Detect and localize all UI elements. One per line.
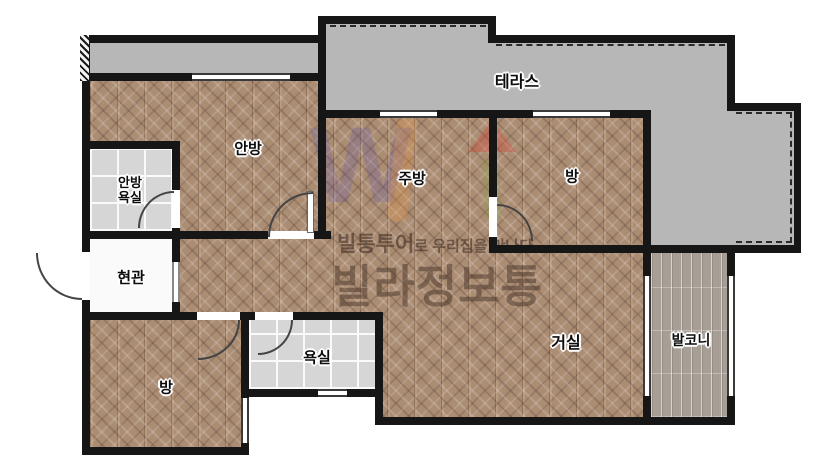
window-master-bedroom xyxy=(192,73,290,81)
room-label-master-bedroom: 안방 xyxy=(234,138,262,159)
wall-balcony-right-a xyxy=(727,245,735,276)
room-label-terrace: 테라스 xyxy=(495,68,539,92)
wall-kitchen-top-a xyxy=(318,110,380,118)
wall-bathroom-right xyxy=(375,312,383,425)
room-label-bathroom: 욕실 xyxy=(303,347,331,368)
terrace-right-bumpout xyxy=(727,111,794,245)
room-label-master-bathroom-line2: 욕실 xyxy=(118,190,142,205)
wall-terrace-bump-top xyxy=(318,16,496,24)
wall-living-balcony-b xyxy=(643,396,651,425)
wall-living-bottom xyxy=(375,417,734,425)
outside-cutout xyxy=(249,397,375,417)
terrace-ticks-bumpout-bottom xyxy=(736,241,792,243)
window-living-balcony xyxy=(643,276,651,396)
window-room-bl xyxy=(241,398,249,443)
wall-room-bl-bottom xyxy=(82,447,249,455)
window-balcony-outer xyxy=(727,276,735,396)
terrace-ticks-bumpout-top xyxy=(736,112,792,114)
door-gap-bathroom xyxy=(255,312,293,320)
wall-hall-right-a xyxy=(172,141,180,190)
window-kitchen xyxy=(380,110,437,118)
wall-master-top-a xyxy=(80,73,192,81)
wall-master-right xyxy=(318,16,326,239)
wall-hall-right-c xyxy=(172,302,180,320)
floor-plan: W 빌통투어로 우리집을 만나다 빌라정보통 xyxy=(0,0,840,472)
window-room-top-right xyxy=(533,110,610,118)
room-label-room-top-right: 방 xyxy=(565,166,579,187)
wall-master-bath-top xyxy=(82,141,179,149)
terrace-left-cap-hatch xyxy=(80,35,89,81)
room-label-entrance: 현관 xyxy=(117,267,145,288)
watermark-brand: 빌라정보통 xyxy=(331,250,543,315)
wall-hall-bottom-c xyxy=(293,312,383,320)
wall-top-right xyxy=(488,35,734,43)
door-gap-room-bl xyxy=(197,312,240,320)
wall-top-left xyxy=(80,35,326,43)
room-label-living-room: 거실 xyxy=(551,329,580,353)
terrace-ticks-topright xyxy=(496,44,725,46)
wall-bumpout-top xyxy=(727,103,801,111)
wall-bumpout-right xyxy=(794,103,801,253)
wall-room-bl-right-b xyxy=(241,443,249,455)
wall-left-outer-lower xyxy=(82,300,90,455)
wall-bathroom-bottom-a xyxy=(241,389,318,397)
room-label-room-bottom-left: 방 xyxy=(159,377,173,398)
terrace-right xyxy=(651,110,727,245)
room-label-master-bathroom: 안방 욕실 xyxy=(118,176,142,206)
room-label-master-bathroom-line1: 안방 xyxy=(118,175,142,190)
wall-kitchen-room-divider-a xyxy=(489,110,497,197)
window-bathroom xyxy=(318,389,347,397)
room-label-kitchen: 주방 xyxy=(398,168,426,189)
wall-kitchen-room-divider-b xyxy=(489,237,497,245)
wall-terrace-step xyxy=(488,16,496,43)
door-arc-entrance xyxy=(36,253,82,300)
wall-room-bl-right-a xyxy=(241,312,249,398)
terrace-strip-left xyxy=(90,43,318,73)
terrace-ticks-bump xyxy=(330,25,486,27)
wall-hall-right-b xyxy=(172,228,180,262)
opening-entrance-hall xyxy=(172,262,180,302)
room-label-balcony: 발코니 xyxy=(672,330,711,350)
wall-kitchen-top-b xyxy=(437,110,533,118)
door-gap-entrance xyxy=(82,252,90,300)
terrace-ticks-bumpout-right xyxy=(790,112,792,243)
wall-balcony-right-b xyxy=(727,396,735,425)
wall-terrace-right-outer xyxy=(727,35,735,111)
wall-living-balcony-a xyxy=(643,110,651,276)
door-gap-room-tr xyxy=(489,197,497,237)
